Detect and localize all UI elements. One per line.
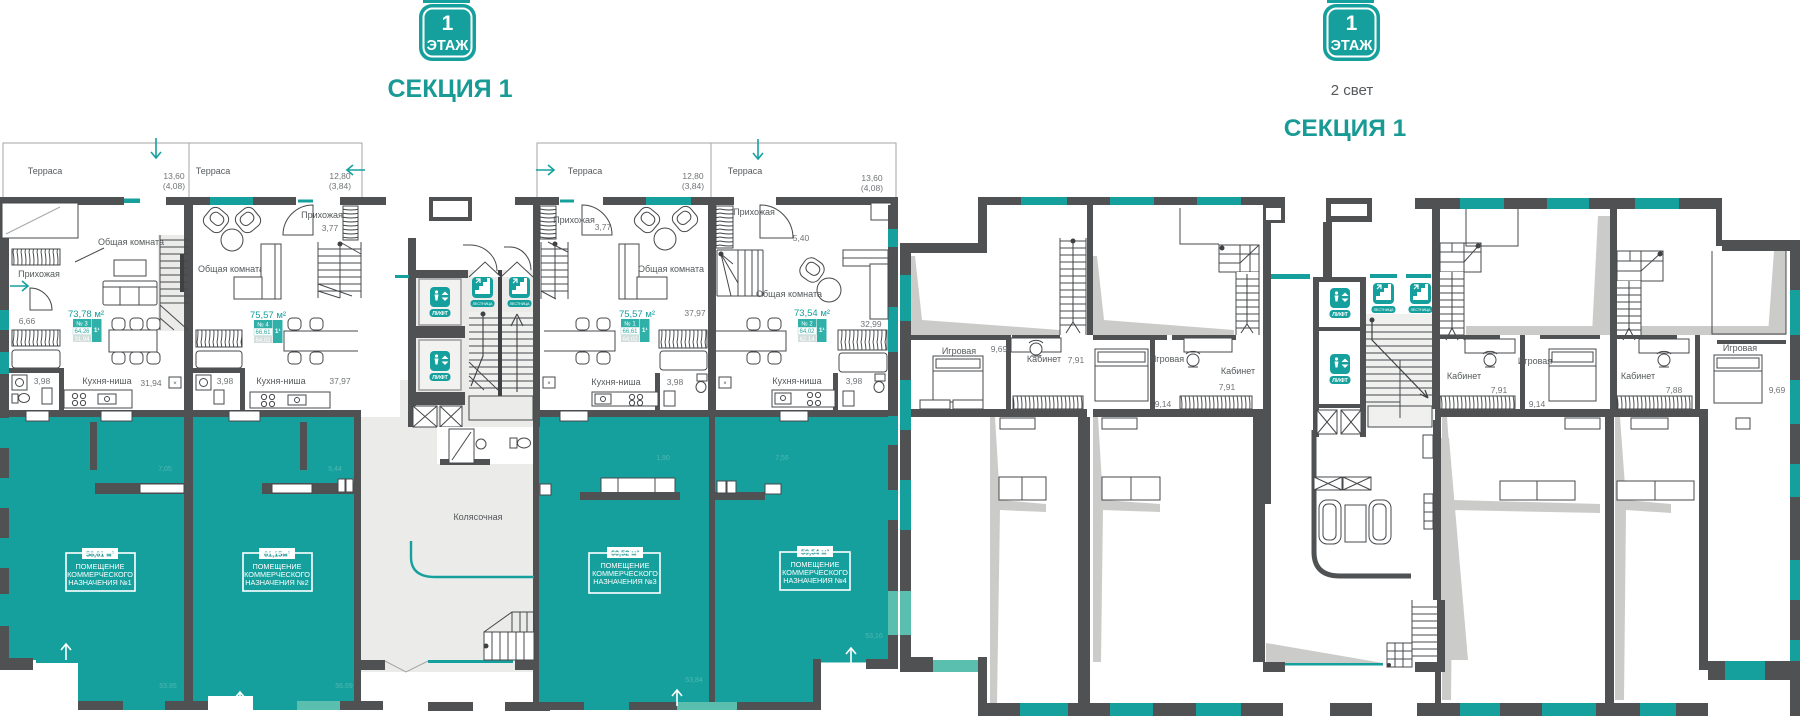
svg-text:Кухня-ниша: Кухня-ниша <box>772 376 821 386</box>
svg-text:9,69: 9,69 <box>1769 385 1786 395</box>
svg-text:53,85: 53,85 <box>159 683 177 690</box>
svg-text:9,69: 9,69 <box>991 344 1008 354</box>
svg-text:1¹: 1¹ <box>642 327 648 334</box>
svg-text:37,97: 37,97 <box>329 376 351 386</box>
svg-text:1: 1 <box>1346 12 1358 35</box>
svg-text:Прихожая: Прихожая <box>18 269 60 279</box>
svg-text:ЛИФТ: ЛИФТ <box>432 311 448 317</box>
svg-text:НАЗНАЧЕНИЯ №1: НАЗНАЧЕНИЯ №1 <box>68 578 131 587</box>
svg-text:31,94: 31,94 <box>140 378 162 388</box>
svg-text:32,99: 32,99 <box>860 319 882 329</box>
svg-text:ЛИФТ: ЛИФТ <box>1332 312 1348 318</box>
svg-text:1¹: 1¹ <box>94 327 100 334</box>
svg-text:ЛЕСТНИЦА: ЛЕСТНИЦА <box>510 302 531 306</box>
svg-text:75,57 м²: 75,57 м² <box>619 309 655 320</box>
svg-text:ЭТАЖ: ЭТАЖ <box>1331 38 1374 54</box>
svg-text:2 свет: 2 свет <box>1331 82 1374 99</box>
svg-text:Общая комната: Общая комната <box>756 289 822 299</box>
svg-text:Кухня-ниша: Кухня-ниша <box>591 377 640 387</box>
svg-text:ЛИФТ: ЛИФТ <box>432 375 448 381</box>
svg-text:53,84: 53,84 <box>685 677 703 684</box>
svg-text:№ 2: № 2 <box>801 321 813 328</box>
svg-text:Общая комната: Общая комната <box>98 237 164 247</box>
svg-text:7,56: 7,56 <box>775 455 789 462</box>
svg-text:64,02: 64,02 <box>622 337 638 343</box>
svg-text:Прихожая: Прихожая <box>733 207 775 217</box>
svg-text:73,54 м²: 73,54 м² <box>794 308 830 319</box>
svg-text:СЕКЦИЯ 1: СЕКЦИЯ 1 <box>387 75 512 103</box>
svg-text:7,05: 7,05 <box>158 466 172 473</box>
svg-text:9,14: 9,14 <box>1155 399 1172 409</box>
svg-text:5,40: 5,40 <box>793 233 810 243</box>
svg-text:7,88: 7,88 <box>1666 385 1683 395</box>
svg-text:Кухня-ниша: Кухня-ниша <box>82 376 131 386</box>
svg-text:3,77: 3,77 <box>322 223 339 233</box>
svg-text:3,77: 3,77 <box>595 222 612 232</box>
svg-text:1: 1 <box>442 12 454 35</box>
svg-text:66,61: 66,61 <box>255 330 271 336</box>
svg-text:7,91: 7,91 <box>1068 355 1085 365</box>
svg-text:Терраса: Терраса <box>568 166 603 176</box>
svg-text:(3,84): (3,84) <box>329 181 351 191</box>
svg-text:64,02: 64,02 <box>799 329 815 335</box>
svg-text:1,90: 1,90 <box>656 455 670 462</box>
svg-text:×: × <box>723 381 727 387</box>
svg-text:Колясочная: Колясочная <box>453 512 502 522</box>
svg-text:ЛЕСТНИЦА: ЛЕСТНИЦА <box>473 302 494 306</box>
svg-text:Прихожая: Прихожая <box>301 210 343 220</box>
svg-text:Кабинет: Кабинет <box>1621 371 1655 381</box>
svg-text:7,91: 7,91 <box>1491 385 1508 395</box>
svg-text:1¹: 1¹ <box>275 328 281 335</box>
svg-text:Кухня-ниша: Кухня-ниша <box>256 376 305 386</box>
svg-text:3,98: 3,98 <box>667 377 684 387</box>
svg-text:Общая комната: Общая комната <box>198 264 264 274</box>
svg-text:Игровая: Игровая <box>1150 354 1184 364</box>
svg-text:Игровая: Игровая <box>1723 343 1757 353</box>
svg-text:3,98: 3,98 <box>846 376 863 386</box>
svg-text:66,61: 66,61 <box>622 329 638 335</box>
svg-text:Терраса: Терраса <box>728 166 763 176</box>
svg-text:64,26: 64,26 <box>74 329 90 335</box>
svg-text:31,94: 31,94 <box>74 337 90 343</box>
svg-text:13,60: 13,60 <box>861 173 883 183</box>
svg-text:3,98: 3,98 <box>217 376 234 386</box>
svg-text:53,16: 53,16 <box>865 633 883 640</box>
svg-text:Общая комната: Общая комната <box>638 264 704 274</box>
svg-text:СЕКЦИЯ 1: СЕКЦИЯ 1 <box>1284 115 1407 142</box>
svg-text:1¹: 1¹ <box>819 327 825 334</box>
svg-text:Игровая: Игровая <box>1518 356 1552 366</box>
svg-text:6,66: 6,66 <box>19 316 36 326</box>
svg-text:13,60: 13,60 <box>163 171 185 181</box>
svg-text:5,44: 5,44 <box>328 466 342 473</box>
svg-text:Кабинет: Кабинет <box>1027 354 1061 364</box>
svg-text:61,15м²: 61,15м² <box>264 550 291 559</box>
svg-text:НАЗНАЧЕНИЯ №4: НАЗНАЧЕНИЯ №4 <box>783 576 846 585</box>
svg-text:НАЗНАЧЕНИЯ №3: НАЗНАЧЕНИЯ №3 <box>593 577 656 586</box>
svg-text:12,80: 12,80 <box>329 171 351 181</box>
svg-text:3,98: 3,98 <box>34 376 51 386</box>
svg-text:(4,08): (4,08) <box>163 181 185 191</box>
svg-text:(3,84): (3,84) <box>682 181 704 191</box>
svg-text:Терраса: Терраса <box>28 166 63 176</box>
svg-text:Игровая: Игровая <box>942 346 976 356</box>
svg-text:№ 1: № 1 <box>624 321 636 328</box>
svg-text:(4,08): (4,08) <box>861 183 883 193</box>
svg-text:ЛИФТ: ЛИФТ <box>1332 378 1348 384</box>
svg-text:62,14: 62,14 <box>799 337 815 343</box>
svg-text:Кабинет: Кабинет <box>1221 366 1255 376</box>
svg-text:12,80: 12,80 <box>682 171 704 181</box>
svg-text:9,14: 9,14 <box>1529 399 1546 409</box>
svg-text:56,69: 56,69 <box>335 683 353 690</box>
svg-text:75,57 м²: 75,57 м² <box>250 310 286 321</box>
svg-text:ЛЕСТНИЦА: ЛЕСТНИЦА <box>1411 308 1432 312</box>
svg-text:7,91: 7,91 <box>1219 382 1236 392</box>
svg-text:58,61 м²: 58,61 м² <box>86 550 115 559</box>
svg-text:№ 3: № 3 <box>76 321 88 328</box>
svg-text:№ 4: № 4 <box>257 322 269 329</box>
svg-text:Кабинет: Кабинет <box>1447 371 1481 381</box>
svg-text:ЛЕСТНИЦА: ЛЕСТНИЦА <box>1374 308 1395 312</box>
svg-text:Терраса: Терраса <box>196 166 231 176</box>
svg-text:73,78 м²: 73,78 м² <box>68 309 104 320</box>
svg-text:НАЗНАЧЕНИЯ №2: НАЗНАЧЕНИЯ №2 <box>245 578 308 587</box>
svg-text:Прихожая: Прихожая <box>553 215 595 225</box>
svg-text:×: × <box>173 381 177 387</box>
svg-text:×: × <box>547 381 551 387</box>
svg-text:37,97: 37,97 <box>684 308 706 318</box>
svg-text:ЭТАЖ: ЭТАЖ <box>427 38 470 54</box>
svg-text:64,02: 64,02 <box>255 338 271 344</box>
